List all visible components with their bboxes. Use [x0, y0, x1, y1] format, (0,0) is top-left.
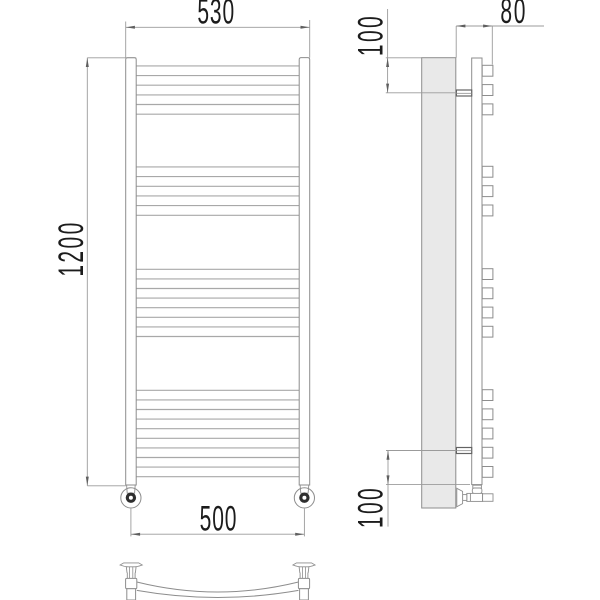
svg-text:100: 100: [352, 14, 391, 56]
svg-text:80: 80: [500, 0, 527, 31]
svg-text:500: 500: [200, 500, 238, 539]
svg-text:1200: 1200: [53, 220, 92, 276]
svg-text:100: 100: [352, 486, 391, 528]
svg-text:530: 530: [197, 0, 235, 32]
